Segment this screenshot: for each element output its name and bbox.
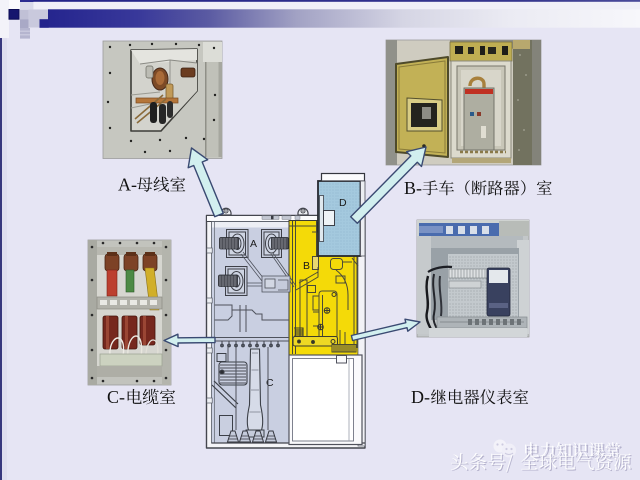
svg-text:B-: B- (404, 178, 422, 198)
svg-text:C-: C- (107, 387, 125, 407)
svg-text:C: C (266, 377, 274, 389)
svg-text:D: D (339, 197, 347, 209)
svg-text:A: A (250, 238, 257, 250)
svg-text:D-: D- (411, 387, 430, 407)
svg-text:A-: A- (118, 175, 137, 195)
svg-text:B: B (303, 260, 310, 272)
